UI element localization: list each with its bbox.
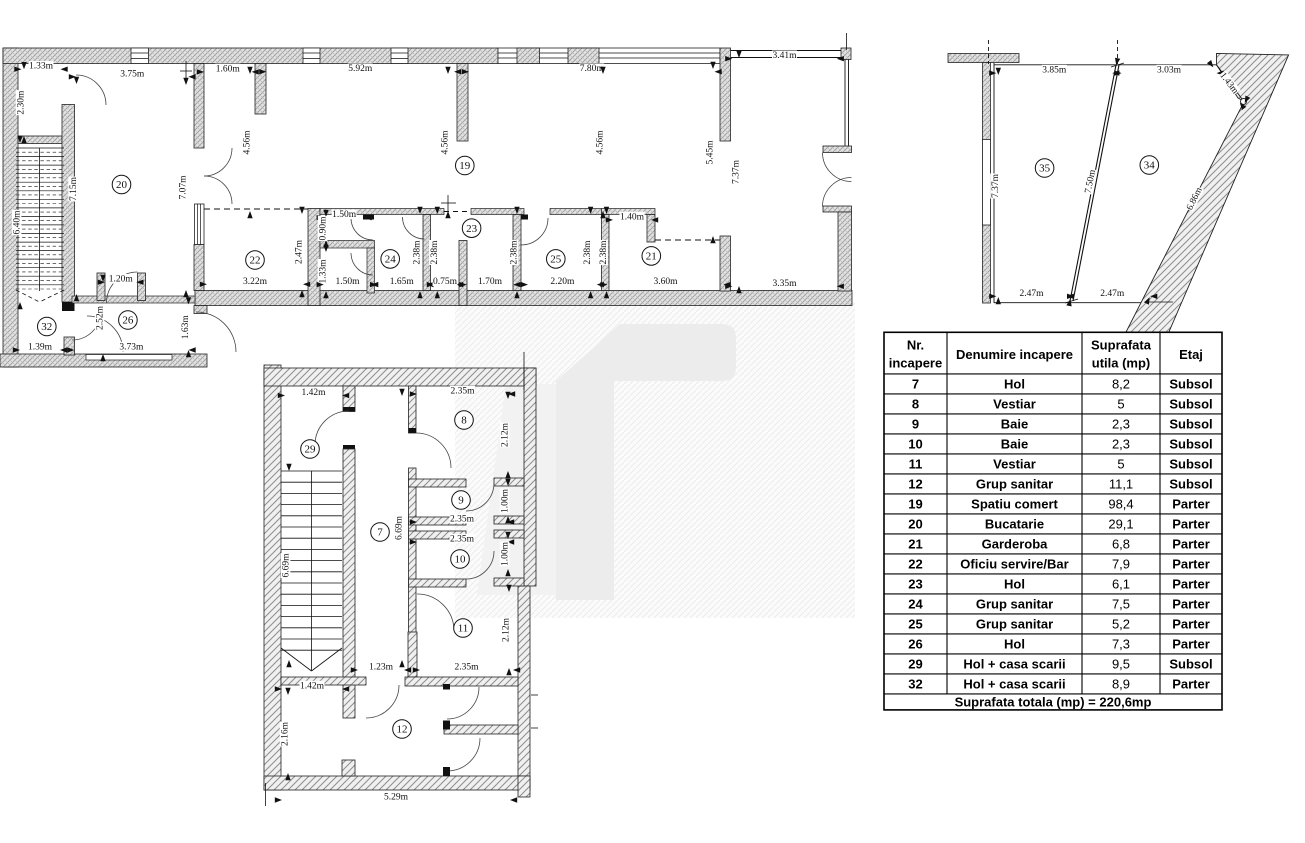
- svg-text:2.35m: 2.35m: [450, 515, 475, 525]
- svg-text:3.73m: 3.73m: [119, 343, 144, 353]
- svg-text:20: 20: [116, 179, 128, 191]
- svg-text:Hol: Hol: [1004, 377, 1025, 392]
- svg-text:2.52m: 2.52m: [96, 305, 106, 330]
- svg-text:1.40m: 1.40m: [620, 212, 645, 222]
- svg-text:7: 7: [912, 377, 919, 392]
- svg-text:10: 10: [455, 554, 467, 566]
- svg-text:21: 21: [646, 251, 657, 263]
- svg-text:29: 29: [305, 444, 317, 456]
- svg-text:Grup sanitar: Grup sanitar: [976, 617, 1053, 632]
- svg-text:Suprafata: Suprafata: [1091, 337, 1152, 352]
- svg-text:26: 26: [122, 315, 134, 327]
- svg-text:Baie: Baie: [1001, 417, 1028, 432]
- svg-text:Garderoba: Garderoba: [982, 537, 1049, 552]
- svg-text:Nr.: Nr.: [907, 337, 924, 352]
- svg-text:32: 32: [41, 321, 52, 333]
- svg-text:29: 29: [908, 657, 922, 672]
- svg-text:2.12m: 2.12m: [501, 422, 511, 447]
- svg-text:23: 23: [908, 577, 922, 592]
- svg-text:1.33m: 1.33m: [319, 259, 329, 284]
- svg-text:2.47m: 2.47m: [1019, 289, 1044, 299]
- svg-text:1.33m: 1.33m: [29, 62, 54, 72]
- svg-text:19: 19: [459, 160, 471, 172]
- svg-text:11,1: 11,1: [1109, 477, 1133, 492]
- svg-text:7.80m: 7.80m: [580, 64, 605, 74]
- svg-text:1.65m: 1.65m: [390, 277, 415, 287]
- svg-text:7.37m: 7.37m: [732, 159, 742, 184]
- svg-text:32: 32: [908, 677, 922, 692]
- svg-text:6.40m: 6.40m: [13, 210, 23, 235]
- svg-text:7.15m: 7.15m: [69, 176, 79, 201]
- svg-text:3.35m: 3.35m: [772, 279, 797, 289]
- svg-text:Parter: Parter: [1172, 517, 1210, 532]
- svg-text:25: 25: [908, 617, 922, 632]
- svg-text:12: 12: [397, 724, 408, 736]
- svg-text:Parter: Parter: [1172, 677, 1210, 692]
- svg-text:Parter: Parter: [1172, 557, 1210, 572]
- svg-text:2.35m: 2.35m: [450, 535, 475, 545]
- svg-text:0.75m: 0.75m: [433, 277, 458, 287]
- svg-text:22: 22: [908, 557, 922, 572]
- svg-text:2.16m: 2.16m: [281, 721, 291, 746]
- svg-text:5.45m: 5.45m: [706, 140, 716, 165]
- svg-text:Subsol: Subsol: [1169, 397, 1212, 412]
- svg-text:4.56m: 4.56m: [243, 130, 253, 155]
- svg-text:6,1: 6,1: [1112, 577, 1130, 592]
- svg-text:2.38m: 2.38m: [599, 240, 609, 265]
- svg-text:Grup sanitar: Grup sanitar: [976, 477, 1053, 492]
- svg-text:2.38m: 2.38m: [583, 240, 593, 265]
- svg-text:2.12m: 2.12m: [502, 617, 512, 642]
- svg-text:Parter: Parter: [1172, 577, 1210, 592]
- svg-text:5.92m: 5.92m: [348, 64, 373, 74]
- svg-text:Hol + casa scarii: Hol + casa scarii: [963, 657, 1065, 672]
- svg-text:Subsol: Subsol: [1169, 417, 1212, 432]
- svg-text:2.20m: 2.20m: [550, 277, 575, 287]
- svg-text:Subsol: Subsol: [1169, 377, 1212, 392]
- svg-text:1.39m: 1.39m: [28, 343, 53, 353]
- svg-text:26: 26: [908, 637, 922, 652]
- svg-text:22: 22: [250, 255, 261, 267]
- svg-text:98,4: 98,4: [1108, 497, 1133, 512]
- svg-text:9: 9: [912, 417, 919, 432]
- svg-text:5: 5: [1117, 397, 1124, 412]
- svg-text:8: 8: [461, 415, 467, 427]
- svg-text:1.70m: 1.70m: [478, 277, 503, 287]
- svg-text:utila (mp): utila (mp): [1092, 355, 1151, 370]
- svg-text:5,2: 5,2: [1112, 617, 1130, 632]
- svg-text:1.42m: 1.42m: [301, 388, 326, 398]
- svg-text:2.47m: 2.47m: [295, 239, 305, 264]
- svg-text:Subsol: Subsol: [1169, 457, 1212, 472]
- svg-text:Vestiar: Vestiar: [993, 397, 1036, 412]
- svg-text:10: 10: [908, 437, 922, 452]
- svg-text:7,3: 7,3: [1112, 637, 1130, 652]
- svg-text:Hol: Hol: [1004, 577, 1025, 592]
- svg-text:7.37m: 7.37m: [991, 173, 1001, 198]
- svg-text:2.35m: 2.35m: [454, 663, 479, 673]
- svg-text:9: 9: [458, 495, 464, 507]
- svg-text:6,8: 6,8: [1112, 537, 1130, 552]
- svg-text:24: 24: [908, 597, 923, 612]
- svg-text:Denumire incapere: Denumire incapere: [956, 347, 1073, 362]
- svg-text:3.03m: 3.03m: [1157, 66, 1182, 76]
- svg-text:Etaj: Etaj: [1179, 347, 1203, 362]
- svg-text:4.56m: 4.56m: [596, 130, 606, 155]
- svg-text:Suprafata totala (mp) = 220,6m: Suprafata totala (mp) = 220,6mp: [955, 694, 1152, 709]
- svg-text:7.07m: 7.07m: [179, 175, 189, 200]
- svg-text:9,5: 9,5: [1112, 657, 1130, 672]
- svg-text:8,9: 8,9: [1112, 677, 1130, 692]
- svg-text:1.20m: 1.20m: [109, 275, 134, 285]
- svg-text:7: 7: [377, 527, 383, 539]
- svg-text:20: 20: [908, 517, 922, 532]
- svg-text:5.29m: 5.29m: [384, 793, 409, 803]
- svg-text:Parter: Parter: [1172, 597, 1210, 612]
- svg-text:8,2: 8,2: [1112, 377, 1130, 392]
- svg-text:34: 34: [1144, 160, 1156, 172]
- svg-text:23: 23: [466, 223, 478, 235]
- svg-text:7,9: 7,9: [1112, 557, 1130, 572]
- svg-text:7,5: 7,5: [1112, 597, 1130, 612]
- svg-text:Parter: Parter: [1172, 497, 1210, 512]
- svg-text:1.42m: 1.42m: [300, 682, 325, 692]
- svg-text:Bucatarie: Bucatarie: [985, 517, 1044, 532]
- svg-text:Parter: Parter: [1172, 537, 1210, 552]
- svg-text:Grup sanitar: Grup sanitar: [976, 597, 1053, 612]
- svg-text:0.90m: 0.90m: [319, 216, 329, 241]
- svg-text:Subsol: Subsol: [1169, 657, 1212, 672]
- svg-text:8: 8: [912, 397, 919, 412]
- svg-text:Spatiu comert: Spatiu comert: [971, 497, 1058, 512]
- svg-text:1.60m: 1.60m: [216, 64, 241, 74]
- svg-text:1.23m: 1.23m: [369, 663, 394, 673]
- svg-text:1.63m: 1.63m: [181, 315, 191, 340]
- svg-text:11: 11: [458, 623, 469, 635]
- svg-text:29,1: 29,1: [1108, 517, 1133, 532]
- svg-text:3.75m: 3.75m: [120, 69, 145, 79]
- svg-text:4.56m: 4.56m: [441, 130, 451, 155]
- svg-text:Hol: Hol: [1004, 637, 1025, 652]
- svg-text:Subsol: Subsol: [1169, 477, 1212, 492]
- svg-text:12: 12: [908, 477, 922, 492]
- svg-text:2.35m: 2.35m: [450, 387, 475, 397]
- svg-text:21: 21: [908, 537, 922, 552]
- svg-text:6.69m: 6.69m: [282, 553, 292, 578]
- svg-text:3.22m: 3.22m: [243, 277, 268, 287]
- svg-text:2,3: 2,3: [1112, 437, 1130, 452]
- svg-text:11: 11: [909, 457, 923, 472]
- svg-text:5: 5: [1117, 457, 1124, 472]
- svg-text:Hol + casa scarii: Hol + casa scarii: [963, 677, 1065, 692]
- svg-text:2.38m: 2.38m: [413, 240, 423, 265]
- svg-text:2.38m: 2.38m: [430, 240, 440, 265]
- svg-text:1.00m: 1.00m: [501, 488, 511, 513]
- svg-text:2.47m: 2.47m: [1100, 289, 1125, 299]
- svg-text:2.38m: 2.38m: [510, 240, 520, 265]
- svg-text:35: 35: [1039, 163, 1051, 175]
- svg-text:Vestiar: Vestiar: [993, 457, 1036, 472]
- svg-text:Subsol: Subsol: [1169, 437, 1212, 452]
- svg-text:3.41m: 3.41m: [772, 51, 797, 61]
- svg-text:Parter: Parter: [1172, 617, 1210, 632]
- svg-text:1.00m: 1.00m: [501, 541, 511, 566]
- svg-text:1.50m: 1.50m: [335, 277, 360, 287]
- svg-text:3.85m: 3.85m: [1042, 66, 1067, 76]
- svg-text:3.60m: 3.60m: [653, 277, 678, 287]
- svg-text:Baie: Baie: [1001, 437, 1028, 452]
- svg-text:Parter: Parter: [1172, 637, 1210, 652]
- svg-text:6.69m: 6.69m: [395, 515, 405, 540]
- svg-text:incapere: incapere: [889, 355, 942, 370]
- svg-text:2.30m: 2.30m: [17, 90, 27, 115]
- svg-text:24: 24: [385, 254, 397, 266]
- svg-text:2,3: 2,3: [1112, 417, 1130, 432]
- svg-text:1.50m: 1.50m: [332, 210, 357, 220]
- svg-text:19: 19: [908, 497, 922, 512]
- svg-text:25: 25: [550, 254, 562, 266]
- svg-text:Oficiu servire/Bar: Oficiu servire/Bar: [960, 557, 1068, 572]
